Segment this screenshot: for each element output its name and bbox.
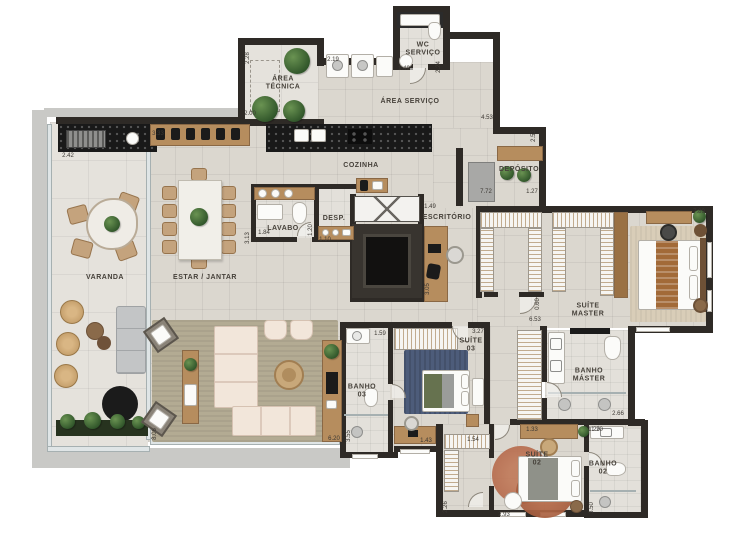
laundry-tank (376, 56, 393, 77)
suite03-pillow (461, 391, 469, 406)
room-label-banho-master: BANHO MÁSTER (565, 368, 613, 385)
dimension-label: 6.20 (328, 436, 340, 442)
pouf (60, 300, 84, 324)
dining-chair (221, 222, 236, 236)
dining-chair (162, 240, 177, 254)
suite02-pillow (571, 480, 580, 497)
planter-plant (110, 414, 125, 429)
room-label-wc-servico: WC SERVIÇO (402, 42, 444, 59)
dimension-label: 0.60 (535, 298, 541, 310)
dimension-label: 2.19 (327, 57, 339, 63)
master-stool (693, 298, 708, 313)
dimension-label: 1.10 (319, 237, 331, 243)
banho03-shower-head (351, 426, 363, 438)
room-label-desp: DESP. (323, 215, 346, 223)
banho03-shower-glass (344, 414, 388, 416)
console-appliance (372, 181, 383, 190)
plant (252, 96, 278, 122)
suite03-art (472, 378, 484, 406)
pantry-bowl (332, 229, 339, 236)
grill (66, 130, 106, 148)
master-pillow (689, 275, 698, 300)
window (707, 290, 712, 312)
master-desk (646, 211, 692, 224)
dimension-label: 8.06 (152, 428, 158, 440)
window (352, 454, 378, 459)
dimension-label: 1.29 (588, 427, 600, 433)
varanda-living-glass (146, 150, 151, 440)
wall (539, 127, 546, 213)
kitchen-sink (294, 129, 309, 142)
suite03-nightstand (466, 414, 479, 427)
console-appliance (360, 180, 368, 191)
room-label-area-tecnica: ÁREA TÉCNICA (261, 76, 305, 93)
wall (443, 32, 499, 39)
banho02-shower-glass (590, 490, 636, 492)
console-tv (326, 372, 338, 394)
shower-head (558, 398, 571, 411)
dimension-label: 2.00 (244, 111, 256, 117)
armchair (264, 320, 287, 340)
room-label-banho03: BANHO 03 (343, 384, 381, 401)
pantry-item (342, 229, 351, 236)
dimension-label: 1.59 (374, 331, 386, 337)
suite02-stool (570, 500, 583, 513)
dimension-label: 2.26 (443, 501, 449, 513)
closet-wardrobe (480, 228, 494, 292)
dimension-label: 3.13 (245, 232, 251, 244)
suite02-closet (444, 450, 459, 492)
deposito-shelf (497, 146, 543, 161)
varanda-railing-left (47, 124, 52, 450)
pouf (56, 332, 80, 356)
dryer-door (357, 60, 368, 71)
dimension-label: 6.53 (529, 317, 541, 323)
wall (388, 322, 393, 384)
room-label-estar-jantar: ESTAR / JANTAR (173, 274, 237, 282)
suite03-pillow (461, 374, 469, 389)
floor-plan: VARANDA ESTAR / JANTAR COZINHA ÁREA TÉCN… (0, 0, 750, 560)
sofa-module (232, 406, 316, 436)
corridor-wardrobe (517, 330, 542, 420)
window (707, 242, 712, 278)
room-label-suite03: SUÍTE 03 (454, 338, 488, 355)
suite03-laptop (408, 430, 418, 437)
suite02-pouf (504, 492, 522, 510)
elevator-hall-hatch (354, 196, 420, 222)
dining-chair (162, 222, 177, 236)
wall (456, 148, 463, 206)
dimension-label: 1.27 (526, 189, 538, 195)
kitchen-sink (311, 129, 326, 142)
dimension-label: 2.66 (612, 411, 624, 417)
wall (493, 32, 500, 134)
bench-cushion (184, 384, 197, 406)
concrete-band-left (32, 110, 47, 462)
planter-plant (60, 414, 75, 429)
elevator-cab (363, 234, 411, 288)
pantry-bowl (322, 229, 329, 236)
banho-master-sink (550, 360, 562, 372)
dimension-label: 2.24 (436, 61, 442, 73)
console-plant (324, 344, 339, 359)
varanda-sofa (116, 306, 146, 374)
wall (641, 424, 648, 518)
window (636, 327, 670, 332)
dimension-label: 3.55 (346, 430, 352, 442)
plant (283, 100, 305, 122)
suite03-throw (442, 374, 454, 408)
banho-master-sink (550, 338, 562, 350)
dimension-label: 1.43 (420, 438, 432, 444)
bar-stool (186, 128, 195, 140)
wall (388, 400, 393, 452)
banho02-shower-head (599, 496, 611, 508)
dimension-label: 1.84 (258, 230, 270, 236)
pouf (54, 364, 78, 388)
dimension-label: 7.72 (480, 189, 492, 195)
wall (56, 117, 242, 124)
wc-toilet (428, 22, 441, 40)
bar-stool (201, 128, 210, 140)
wall (251, 237, 297, 242)
dining-chair (221, 240, 236, 254)
dining-chair (221, 204, 236, 218)
room-label-banho02: BANHO 02 (584, 461, 622, 478)
office-chair (446, 246, 464, 264)
varanda-railing-bottom (47, 446, 150, 452)
room-label-suite02: SUÍTE 02 (520, 452, 554, 469)
bench-plant (184, 358, 197, 371)
closet-wardrobe (600, 228, 614, 296)
lavabo-toilet (292, 202, 307, 224)
bar-stool (216, 128, 225, 140)
lavabo-bowl (271, 189, 280, 198)
suite02-pillow (571, 460, 580, 477)
dining-chair (162, 204, 177, 218)
banho-master-niche (570, 328, 610, 334)
master-nightstand (694, 224, 707, 237)
lavabo-bowl (258, 189, 267, 198)
closet-wardrobe (552, 228, 566, 292)
room-label-suite-master: SUÍTE MASTER (565, 303, 611, 320)
window (400, 449, 430, 454)
suite03-closet (394, 328, 458, 350)
dining-centerpiece (190, 208, 208, 226)
dining-chair (221, 186, 236, 200)
freezer (468, 162, 495, 202)
bar-stool (171, 128, 180, 140)
room-label-varanda: VARANDA (86, 274, 124, 282)
banho03-sink (352, 331, 362, 341)
concrete-band-top (44, 108, 246, 117)
room-label-lavabo: LAVABO (267, 225, 299, 233)
lavabo-bowl (284, 189, 293, 198)
dimension-label: 7.89 (693, 209, 705, 215)
dining-chair (162, 186, 177, 200)
lavabo-sink (257, 204, 283, 220)
dimension-label: 3.33 (152, 131, 164, 137)
shower-head (598, 398, 611, 411)
rattan-coffee-table-top (282, 368, 296, 382)
room-label-escritorio: ESCRITÓRIO (423, 214, 472, 222)
plant (284, 48, 310, 74)
room-label-deposito: DEPÓSITO (499, 166, 539, 174)
banho-master-toilet (604, 336, 621, 360)
dimension-label: 1.20 (308, 224, 314, 236)
side-table (97, 336, 111, 350)
counter-sink (126, 132, 139, 145)
wall (240, 38, 324, 45)
office-laptop (428, 244, 441, 253)
closet-wardrobe (528, 228, 542, 292)
wall (436, 424, 443, 516)
dimension-label: 1.33 (526, 427, 538, 433)
wall (484, 292, 498, 297)
master-pillow (689, 246, 698, 271)
dimension-label: 1.49 (398, 66, 410, 72)
closet-wood-panel (614, 212, 628, 298)
dimension-label: 3.05 (425, 283, 431, 295)
planter-plant (84, 412, 101, 429)
dimension-label: 2.42 (62, 153, 74, 159)
wall (489, 486, 494, 512)
closet-wardrobe (480, 212, 542, 228)
office-side-chair (426, 263, 441, 280)
dimension-label: 2.93 (498, 512, 510, 518)
wall (628, 330, 635, 426)
room-label-area-servico: ÁREA SERVIÇO (381, 98, 440, 106)
cooktop (348, 129, 372, 144)
dimension-label: 3.50 (589, 502, 595, 514)
suite03-chair (404, 416, 419, 431)
room-label-cozinha: COZINHA (343, 162, 378, 170)
table-plant (104, 216, 120, 232)
dimension-label: 2.28 (245, 52, 251, 64)
console-item (326, 400, 337, 409)
dimension-label: 2.53 (531, 130, 537, 142)
bar-stool (231, 128, 240, 140)
armchair (290, 320, 313, 340)
dimension-label: 1.54 (467, 437, 479, 443)
dimension-label: 4.53 (481, 115, 493, 121)
closet-wardrobe (552, 212, 614, 228)
sofa-module (214, 326, 258, 408)
dimension-label: 1.49 (424, 204, 436, 210)
master-desk-chair (660, 224, 677, 241)
master-bed-runner (656, 241, 678, 309)
dimension-label: 3.27 (472, 329, 484, 335)
